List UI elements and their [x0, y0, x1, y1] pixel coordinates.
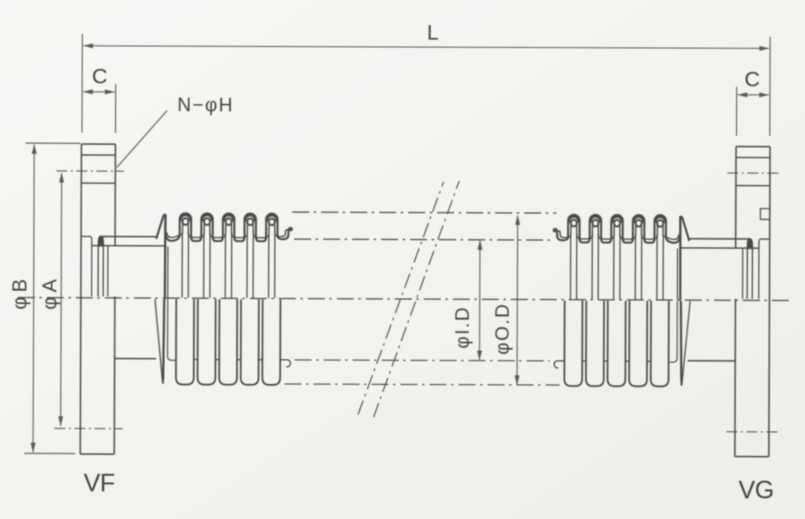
svg-text:φA: φA — [39, 274, 61, 309]
svg-text:VG: VG — [739, 476, 774, 504]
svg-text:φI.D: φI.D — [453, 306, 474, 349]
svg-text:VF: VF — [84, 469, 115, 497]
svg-text:N−φH: N−φH — [177, 95, 234, 116]
svg-text:C: C — [744, 67, 760, 91]
svg-text:C: C — [92, 64, 108, 88]
svg-text:φO.D: φO.D — [493, 303, 514, 355]
svg-text:L: L — [427, 22, 439, 45]
svg-text:φB: φB — [9, 274, 31, 309]
